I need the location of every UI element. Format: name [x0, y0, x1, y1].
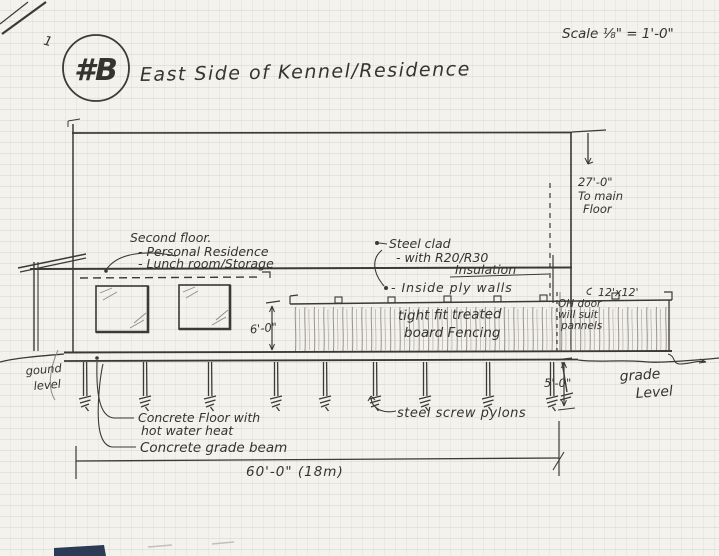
sketch-canvas: 1 #B East Side of Kennel/Residence Scale… [0, 0, 719, 556]
badge-label: #B [74, 53, 118, 88]
bottom-smudge [54, 542, 234, 556]
fence-height-label: 6'-0" [249, 320, 278, 337]
cladding-line3: Insulation [455, 262, 516, 277]
scale-note: Scale ⅛" = 1'-0" [562, 26, 674, 42]
cladding-note: Steel clad - with R20/R30 Insulation - I… [375, 236, 549, 295]
fencing-line1: tight fit treated [398, 306, 502, 324]
ground-level-line2: level [33, 377, 62, 393]
cladding-line1: Steel clad [389, 236, 451, 251]
pylons-note: steel screw pylons [368, 396, 526, 421]
grade-line [0, 350, 719, 400]
height-dim-label: 27'-0" [578, 175, 613, 189]
second-floor-note: Second floor. - Personal Residence - Lun… [104, 230, 274, 273]
floor-note-line2: hot water heat [141, 423, 234, 438]
fencing-line2: board Fencing [404, 325, 501, 341]
pylons-note-label: steel screw pylons [397, 406, 526, 421]
beam-note-label: Concrete grade beam [140, 440, 287, 456]
grade-level-line1: grade [619, 366, 661, 385]
grade-beam [64, 351, 672, 361]
dim-height-to-main [572, 130, 606, 164]
height-dim-line2: To main [578, 189, 623, 203]
concrete-floor-note: Concrete Floor with hot water heat [95, 356, 260, 438]
window-left [96, 286, 148, 332]
screw-pylons [79, 362, 573, 411]
ground-level-line1: gound [25, 361, 63, 378]
ground-level-note: gound level [25, 361, 63, 393]
sheet-mark: 1 [42, 34, 54, 51]
sheet-badge: #B [63, 35, 129, 101]
oh-door-line4: pannels [560, 320, 603, 332]
overall-width-label: 60'-0" (18m) [246, 464, 344, 480]
pylon-depth-label: 5'-0" [544, 376, 571, 390]
cladding-line4: - Inside ply walls [391, 280, 513, 295]
second-floor-item2: - Lunch room/Storage [138, 256, 274, 271]
grade-level-line2: Level [635, 383, 673, 402]
window-right [179, 285, 230, 329]
graph-paper-sheet: 1 #B East Side of Kennel/Residence Scale… [0, 0, 719, 556]
corner-marks [0, 2, 46, 34]
grade-level-note: grade Level [619, 366, 673, 402]
second-floor-title: Second floor. [130, 230, 211, 245]
height-dim-line3: Floor [583, 202, 613, 216]
oh-door-size: 12'x12' [598, 286, 639, 299]
page-title: East Side of Kennel/Residence [140, 58, 471, 86]
